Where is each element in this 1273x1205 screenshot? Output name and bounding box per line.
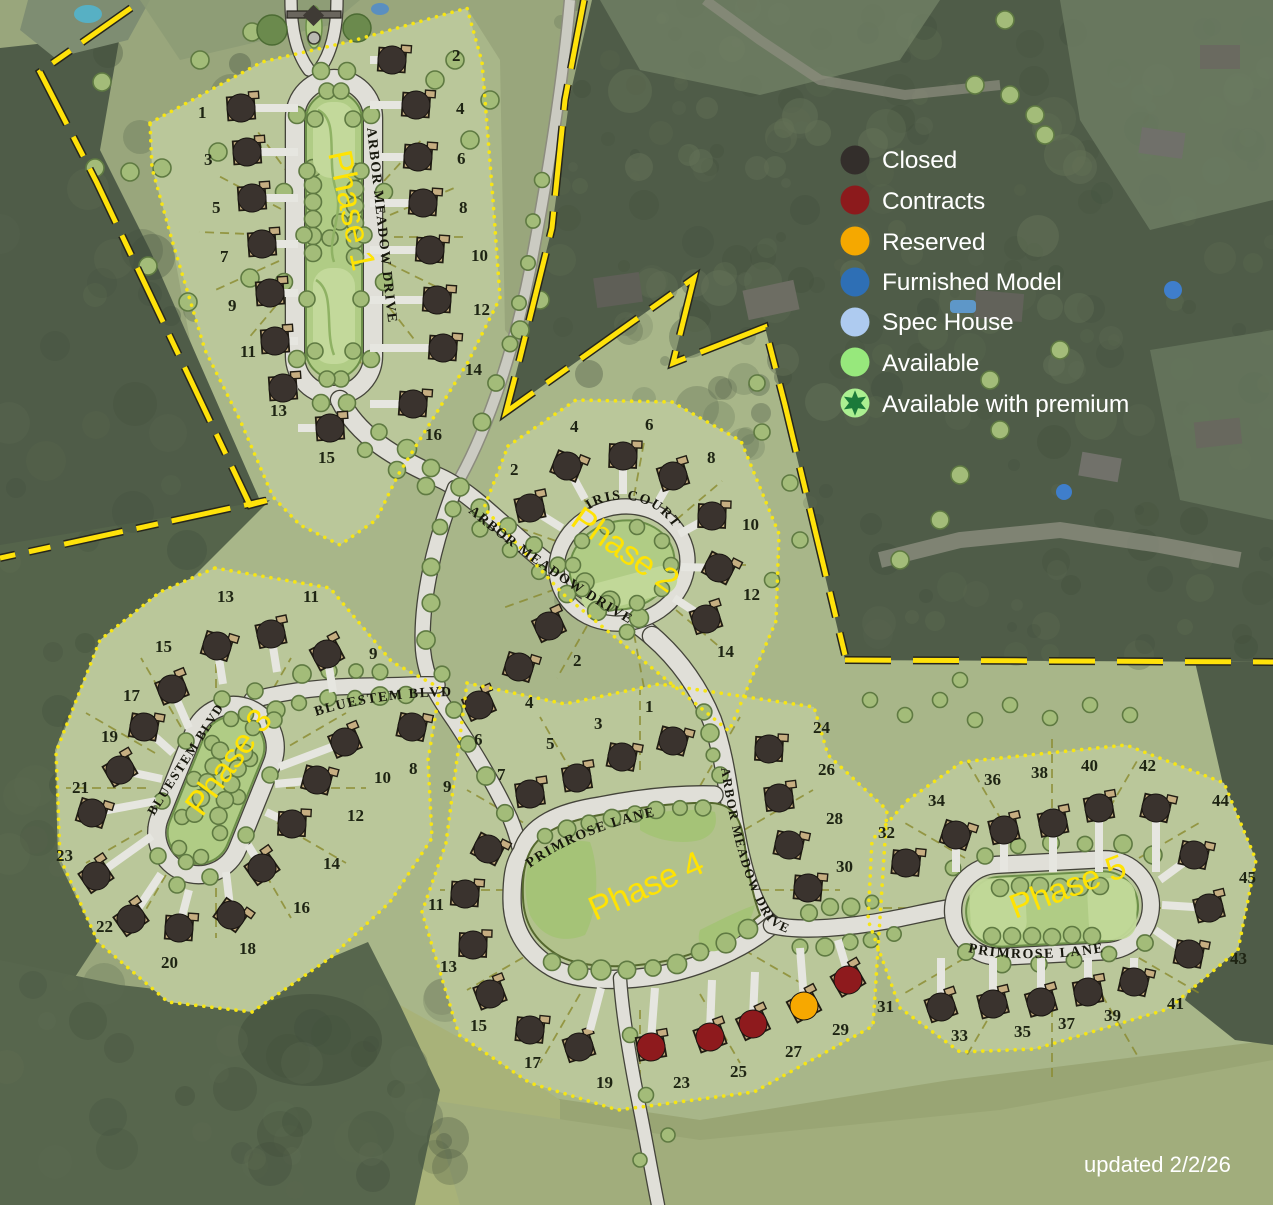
svg-text:38: 38 [1031, 763, 1048, 782]
svg-text:11: 11 [428, 895, 444, 914]
svg-text:16: 16 [293, 898, 310, 917]
svg-text:37: 37 [1058, 1014, 1076, 1033]
svg-text:4: 4 [525, 693, 534, 712]
svg-text:Available with premium: Available with premium [882, 391, 1129, 418]
svg-text:13: 13 [440, 957, 457, 976]
svg-text:4: 4 [570, 417, 579, 436]
svg-text:21: 21 [72, 778, 89, 797]
svg-text:25: 25 [730, 1062, 747, 1081]
svg-text:28: 28 [826, 809, 843, 828]
svg-text:13: 13 [270, 401, 287, 420]
svg-text:9: 9 [228, 296, 237, 315]
svg-text:42: 42 [1139, 756, 1156, 775]
svg-text:35: 35 [1014, 1022, 1031, 1041]
svg-text:1: 1 [198, 103, 207, 122]
svg-text:14: 14 [717, 642, 735, 661]
svg-text:12: 12 [473, 300, 490, 319]
svg-text:39: 39 [1104, 1006, 1121, 1025]
svg-text:2: 2 [510, 460, 519, 479]
svg-text:15: 15 [470, 1016, 487, 1035]
svg-text:6: 6 [645, 415, 654, 434]
svg-text:3: 3 [204, 150, 213, 169]
svg-text:36: 36 [984, 770, 1001, 789]
svg-text:45: 45 [1239, 868, 1256, 887]
svg-text:12: 12 [347, 806, 364, 825]
svg-text:33: 33 [951, 1026, 968, 1045]
svg-text:15: 15 [155, 637, 172, 656]
svg-text:24: 24 [813, 718, 831, 737]
svg-text:7: 7 [497, 765, 506, 784]
svg-text:9: 9 [443, 777, 452, 796]
svg-text:26: 26 [818, 760, 835, 779]
svg-text:Furnished Model: Furnished Model [882, 269, 1061, 296]
svg-text:29: 29 [832, 1020, 849, 1039]
svg-text:Contracts: Contracts [882, 188, 985, 215]
svg-text:17: 17 [524, 1053, 542, 1072]
svg-text:15: 15 [318, 448, 335, 467]
svg-text:1: 1 [645, 697, 654, 716]
svg-text:18: 18 [239, 939, 256, 958]
svg-text:41: 41 [1167, 994, 1184, 1013]
svg-text:27: 27 [785, 1042, 803, 1061]
svg-text:40: 40 [1081, 756, 1098, 775]
svg-text:8: 8 [409, 759, 418, 778]
svg-text:14: 14 [323, 854, 341, 873]
svg-text:34: 34 [928, 791, 946, 810]
svg-text:Spec House: Spec House [882, 309, 1013, 336]
svg-text:6: 6 [457, 149, 466, 168]
svg-text:23: 23 [673, 1073, 690, 1092]
svg-text:2: 2 [452, 46, 461, 65]
svg-text:43: 43 [1230, 949, 1247, 968]
svg-text:12: 12 [743, 585, 760, 604]
svg-text:19: 19 [101, 727, 118, 746]
svg-text:32: 32 [878, 823, 895, 842]
svg-text:30: 30 [836, 857, 853, 876]
svg-text:17: 17 [123, 686, 141, 705]
svg-text:11: 11 [303, 587, 319, 606]
svg-text:44: 44 [1212, 791, 1230, 810]
svg-text:11: 11 [240, 342, 256, 361]
svg-text:8: 8 [459, 198, 468, 217]
svg-text:16: 16 [425, 425, 442, 444]
svg-text:4: 4 [456, 99, 465, 118]
svg-text:8: 8 [707, 448, 716, 467]
svg-text:2: 2 [573, 651, 582, 670]
svg-text:20: 20 [161, 953, 178, 972]
svg-text:Reserved: Reserved [882, 229, 985, 256]
svg-text:14: 14 [465, 360, 483, 379]
svg-text:5: 5 [546, 734, 555, 753]
svg-text:7: 7 [220, 247, 229, 266]
svg-text:23: 23 [56, 846, 73, 865]
svg-text:10: 10 [471, 246, 488, 265]
svg-text:9: 9 [369, 644, 378, 663]
svg-text:3: 3 [594, 714, 603, 733]
svg-text:Available: Available [882, 350, 979, 377]
svg-text:Closed: Closed [882, 147, 957, 174]
svg-text:19: 19 [596, 1073, 613, 1092]
svg-text:13: 13 [217, 587, 234, 606]
svg-text:5: 5 [212, 198, 221, 217]
svg-text:31: 31 [877, 997, 894, 1016]
svg-text:6: 6 [474, 730, 483, 749]
svg-text:10: 10 [742, 515, 759, 534]
svg-text:10: 10 [374, 768, 391, 787]
svg-text:22: 22 [96, 917, 113, 936]
svg-text:updated 2/2/26: updated 2/2/26 [1084, 1152, 1231, 1177]
